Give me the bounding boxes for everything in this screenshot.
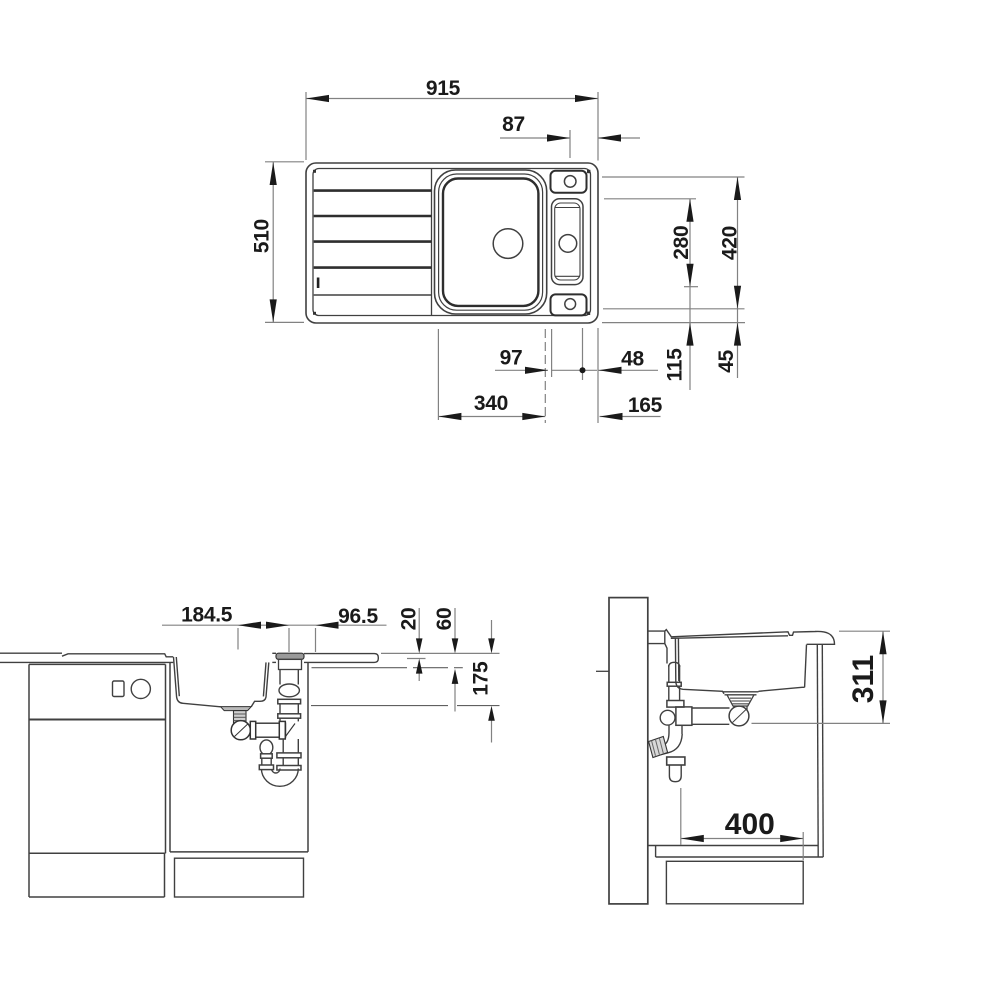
svg-text:175: 175 xyxy=(469,661,492,696)
svg-text:400: 400 xyxy=(725,808,775,841)
svg-text:60: 60 xyxy=(433,608,456,631)
svg-text:96.5: 96.5 xyxy=(338,605,378,628)
svg-text:280: 280 xyxy=(670,226,693,260)
svg-text:311: 311 xyxy=(847,655,880,703)
svg-text:340: 340 xyxy=(474,392,508,415)
svg-text:20: 20 xyxy=(397,608,420,631)
svg-text:87: 87 xyxy=(502,113,525,136)
svg-text:510: 510 xyxy=(251,219,274,253)
svg-text:48: 48 xyxy=(621,348,644,371)
svg-text:420: 420 xyxy=(719,226,742,260)
svg-text:97: 97 xyxy=(500,347,523,370)
svg-text:165: 165 xyxy=(628,394,663,417)
svg-text:45: 45 xyxy=(715,350,738,373)
svg-text:915: 915 xyxy=(426,77,461,100)
svg-text:184.5: 184.5 xyxy=(181,604,233,627)
svg-text:115: 115 xyxy=(664,348,687,382)
